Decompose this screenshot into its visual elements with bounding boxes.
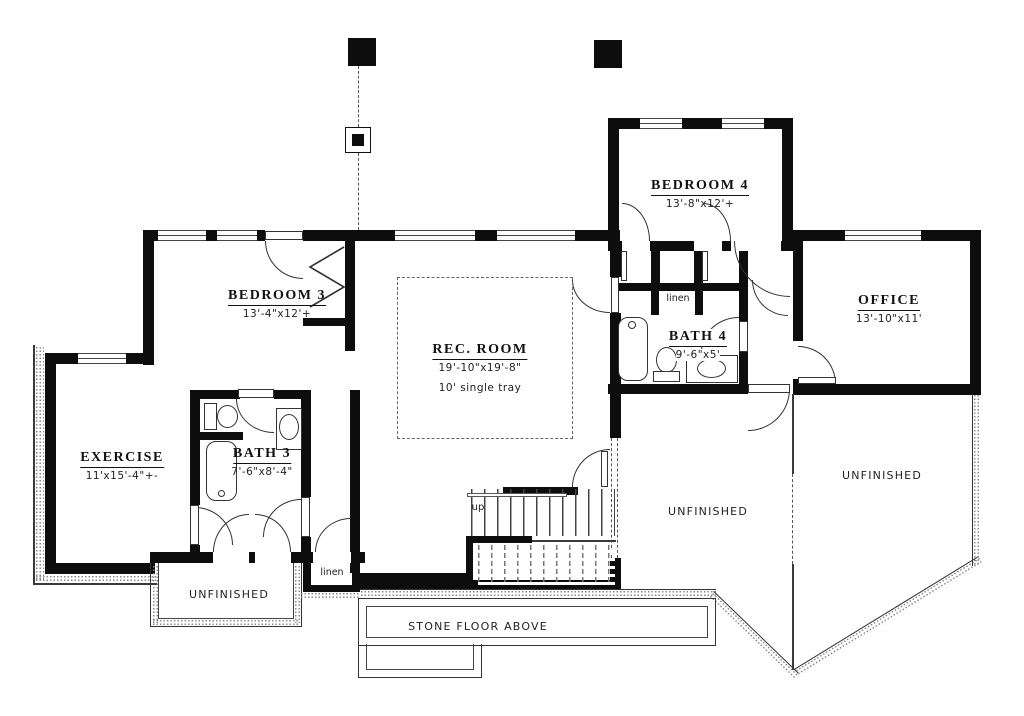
door-leaf-office [798, 377, 836, 384]
bath4-dims: 9'-6"x5' [676, 349, 721, 361]
door-leaf-bath3 [238, 389, 274, 398]
window-exercise [78, 353, 126, 364]
wall-linen-left [303, 563, 311, 587]
bath3-name: BATH 3 [233, 446, 291, 464]
window-recroom-1 [395, 230, 475, 241]
cased-opening-dash-2 [617, 438, 618, 558]
tub-faucet-bath4 [628, 321, 636, 329]
door-opening-hall-2 [255, 552, 291, 563]
wall-linen-right [352, 563, 360, 587]
exercise-label-group: EXERCISE 11'x15'-4"+- [80, 450, 164, 482]
wall-bedroom4-top [608, 118, 793, 129]
exterior-line-bottom-left [33, 583, 157, 585]
partition-line-lower [792, 564, 794, 670]
unfinished-center-label: UNFINISHED [668, 505, 748, 518]
office-label-group: OFFICE 13'-10"x11' [856, 293, 922, 325]
floor-plan: up BEDROOM 3 13'-4"x12'+ EXERCISE 11'x [0, 0, 1024, 716]
recroom-name: REC. ROOM [432, 342, 527, 360]
recroom-label-group: REC. ROOM 19'-10"x19'-8" 10' single tray [432, 342, 527, 394]
recroom-note: 10' single tray [439, 382, 522, 394]
wall-bath4-bottom [608, 384, 748, 394]
exercise-name: EXERCISE [80, 450, 164, 468]
wall-stairs-divider [466, 536, 532, 543]
door-leaf-exercise [190, 505, 199, 545]
column-right [594, 40, 622, 68]
stairs-handrail [467, 493, 567, 497]
stipple-bottom-band [360, 589, 716, 598]
wall-office-bottom [793, 384, 981, 395]
partition-line-upper [792, 394, 794, 474]
bath3-label-group: BATH 3 7'-6"x8'-4" [231, 446, 292, 478]
wall-closet-bottom-band [612, 283, 748, 291]
wall-bedroom4-right [782, 118, 793, 241]
door-arc-hallway [752, 280, 788, 316]
stipple-left [35, 346, 44, 580]
wall-bath3-toilet-nook [199, 432, 243, 440]
window-bedroom3-2 [217, 230, 257, 241]
exercise-dims: 11'x15'-4"+- [86, 470, 159, 482]
window-recroom-2 [497, 230, 575, 241]
bedroom3-name: BEDROOM 3 [228, 288, 326, 306]
wall-office-left-upper [793, 241, 803, 341]
wall-exercise-bottom [45, 563, 155, 574]
wall-bedroom4-left [608, 118, 619, 241]
bath3-dims: 7'-6"x8'-4" [231, 466, 292, 478]
stairs-lower-flight-dashed [478, 545, 615, 585]
bedroom3-dims: 13'-4"x12'+ [243, 308, 311, 320]
wall-exercise-left [45, 353, 56, 574]
linen-hall-label: linen [320, 567, 343, 578]
stipple-diagonal-right [794, 556, 983, 677]
door-leaf-bath4 [739, 321, 748, 352]
office-dims: 13'-10"x11' [856, 313, 922, 325]
toilet-tank-bath3 [204, 403, 217, 430]
wall-bedroom3-left [143, 230, 154, 365]
bedroom4-name: BEDROOM 4 [651, 178, 749, 196]
window-bedroom3-1 [158, 230, 206, 241]
stipple-right-band [972, 394, 981, 566]
stone-step-inner [366, 644, 474, 670]
bath4-label-group: BATH 4 9'-6"x5' [669, 329, 727, 361]
stipple-diagonal-left [708, 591, 799, 679]
office-name: OFFICE [858, 293, 920, 311]
door-leaf-bath3-hall [301, 497, 310, 537]
door-leaf-closet2 [702, 251, 708, 281]
door-leaf-bedroom3 [265, 231, 303, 240]
door-arc-unfinished [748, 389, 790, 431]
linen-bath4-label: linen [666, 293, 689, 304]
wall-bath3-right [301, 390, 311, 563]
stairs-divider-line [532, 540, 616, 542]
wall-linen4-right [695, 291, 703, 315]
door-leaf-rec-hall [611, 277, 619, 313]
door-leaf-closet1 [621, 251, 627, 281]
sink-bath4 [697, 359, 726, 378]
door-opening-hall-1 [213, 552, 249, 563]
stairs-up-label: up [472, 502, 485, 513]
door-arc-rec-hall [572, 280, 610, 313]
wall-hall-rec [350, 390, 360, 573]
wall-linen-bottom [303, 585, 360, 592]
wall-stairs-left-stub [466, 543, 473, 588]
pocket-stipple-left [152, 565, 158, 623]
stone-floor-label: STONE FLOOR ABOVE [408, 620, 548, 633]
window-office [845, 230, 921, 241]
window-bedroom4-1 [640, 118, 682, 129]
toilet-base-bath4 [653, 371, 680, 382]
tub-drain-bath3 [218, 490, 225, 497]
door-leaf-stairs [601, 451, 608, 487]
bedroom4-label-group: BEDROOM 4 13'-8"x12'+ [651, 178, 749, 210]
pocket-stipple-bottom [152, 619, 298, 625]
wall-linen4-left [651, 291, 659, 315]
stipple-under-linen [300, 592, 360, 598]
partition-line-dashed [792, 474, 793, 564]
door-arc-linen [315, 518, 351, 552]
bedroom3-label-group: BEDROOM 3 13'-4"x12'+ [228, 288, 326, 320]
bath4-name: BATH 4 [669, 329, 727, 347]
sink-bath3 [279, 414, 299, 440]
column-left [348, 38, 376, 66]
unfinished-right-label: UNFINISHED [842, 469, 922, 482]
door-leaf-unfinished [748, 384, 790, 393]
toilet-bowl-bath3 [217, 405, 238, 428]
door-opening-closet1 [622, 241, 650, 251]
window-bedroom4-2 [722, 118, 764, 129]
unfinished-bottom-left-label: UNFINISHED [189, 588, 269, 601]
wall-office-right [970, 230, 981, 395]
post [352, 134, 364, 146]
column-dash-line-upper [358, 66, 359, 127]
door-opening-linen [313, 552, 351, 563]
door-arc-closet1 [622, 203, 650, 241]
bedroom4-dims: 13'-8"x12'+ [666, 198, 734, 210]
column-dash-line-lower [358, 153, 359, 230]
door-arc-bath3 [236, 399, 274, 433]
recroom-dims: 19'-10"x19'-8" [438, 362, 521, 374]
door-arc-bedroom3 [265, 241, 303, 279]
door-opening-closet2 [694, 241, 722, 251]
